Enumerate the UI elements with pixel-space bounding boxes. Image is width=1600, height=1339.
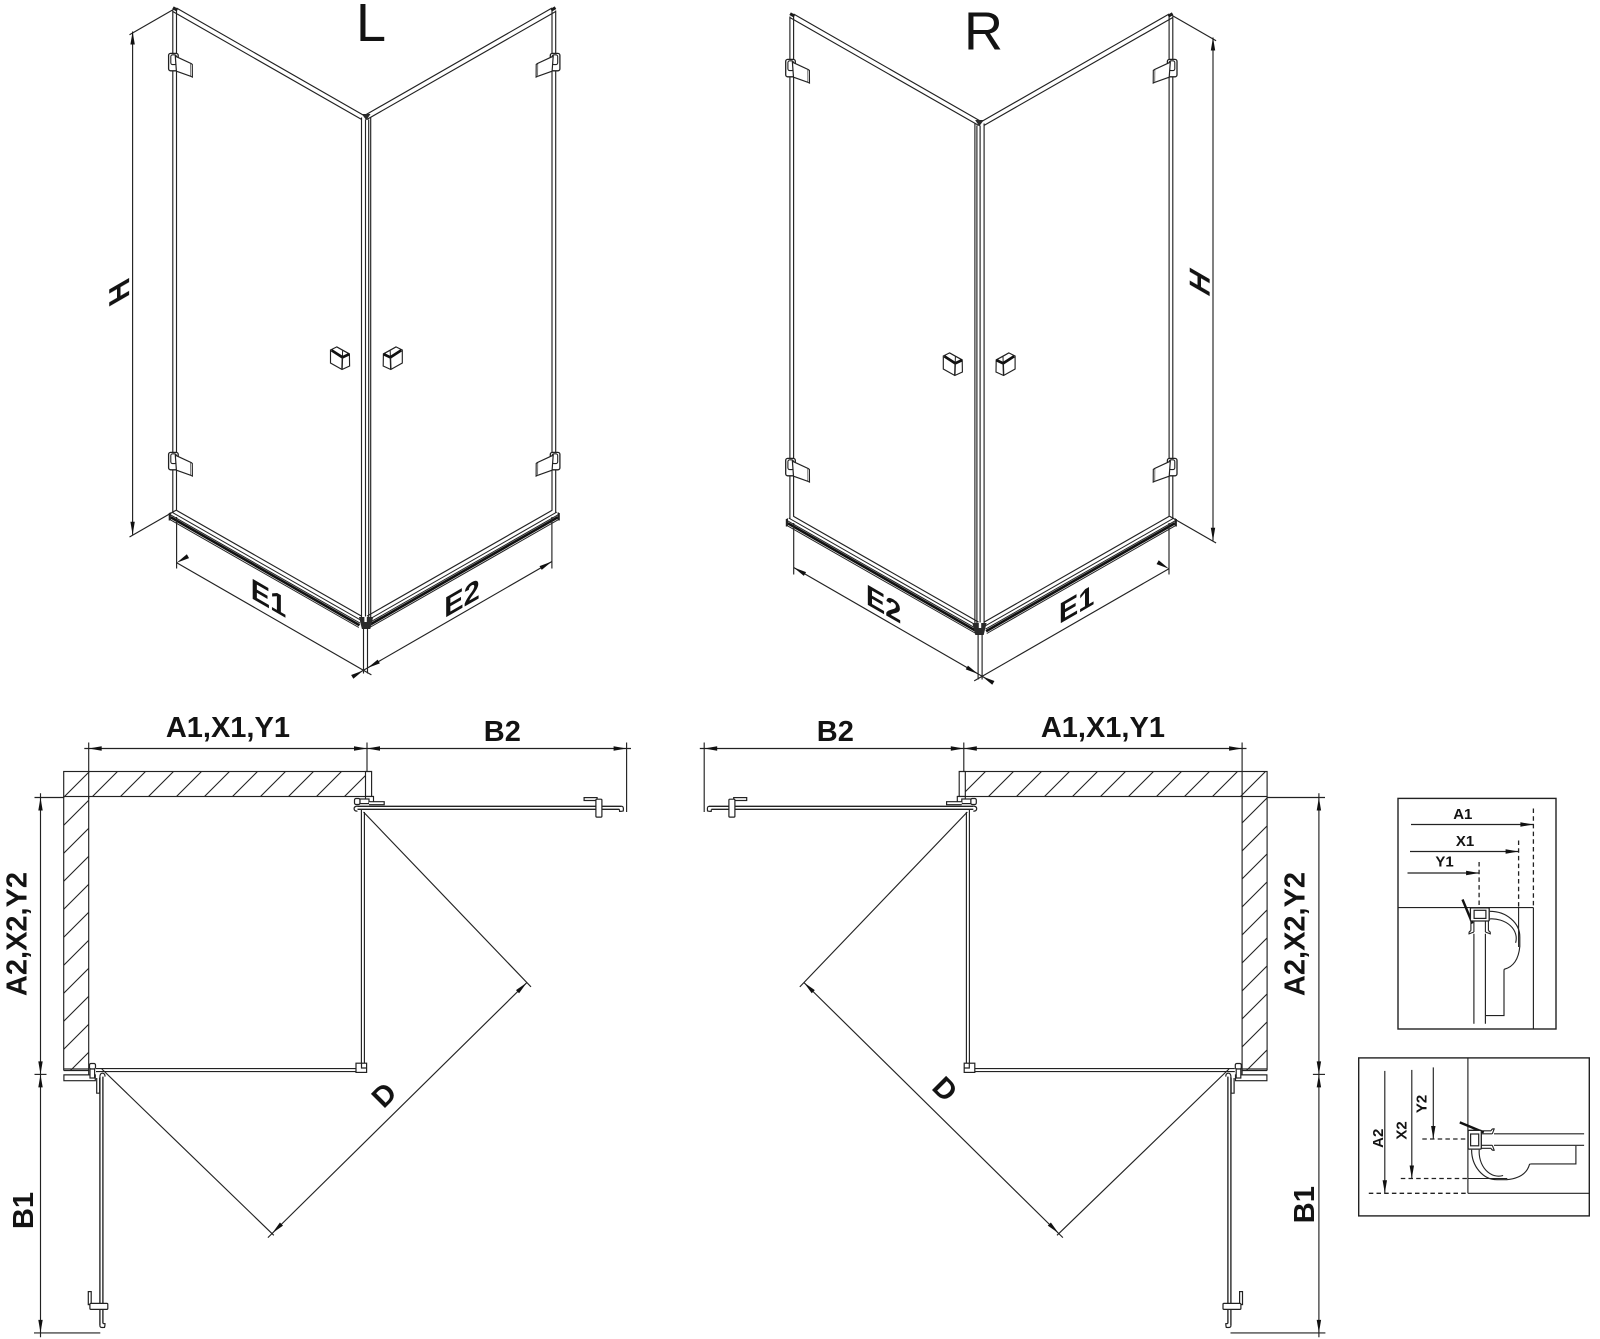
svg-text:X1: X1 [1456,833,1474,850]
svg-text:B2: B2 [484,716,521,748]
svg-text:A1,X1,Y1: A1,X1,Y1 [1041,712,1165,744]
svg-text:Y1: Y1 [1435,854,1453,871]
svg-text:R: R [964,2,1003,62]
svg-text:A2,X2,Y2: A2,X2,Y2 [1279,872,1311,996]
svg-text:A1,X1,Y1: A1,X1,Y1 [166,712,290,744]
svg-text:B2: B2 [817,716,854,748]
svg-text:A2,X2,Y2: A2,X2,Y2 [2,872,34,996]
svg-text:D: D [926,1071,963,1108]
svg-text:Y2: Y2 [1414,1095,1431,1113]
svg-text:B1: B1 [1289,1186,1321,1223]
svg-text:X2: X2 [1393,1121,1410,1139]
svg-text:H: H [1184,262,1216,302]
svg-text:A1: A1 [1453,806,1472,823]
svg-text:L: L [356,0,386,53]
svg-text:A2: A2 [1370,1129,1387,1148]
svg-text:D: D [366,1077,403,1114]
svg-text:H: H [103,272,135,312]
svg-text:B1: B1 [8,1192,40,1229]
